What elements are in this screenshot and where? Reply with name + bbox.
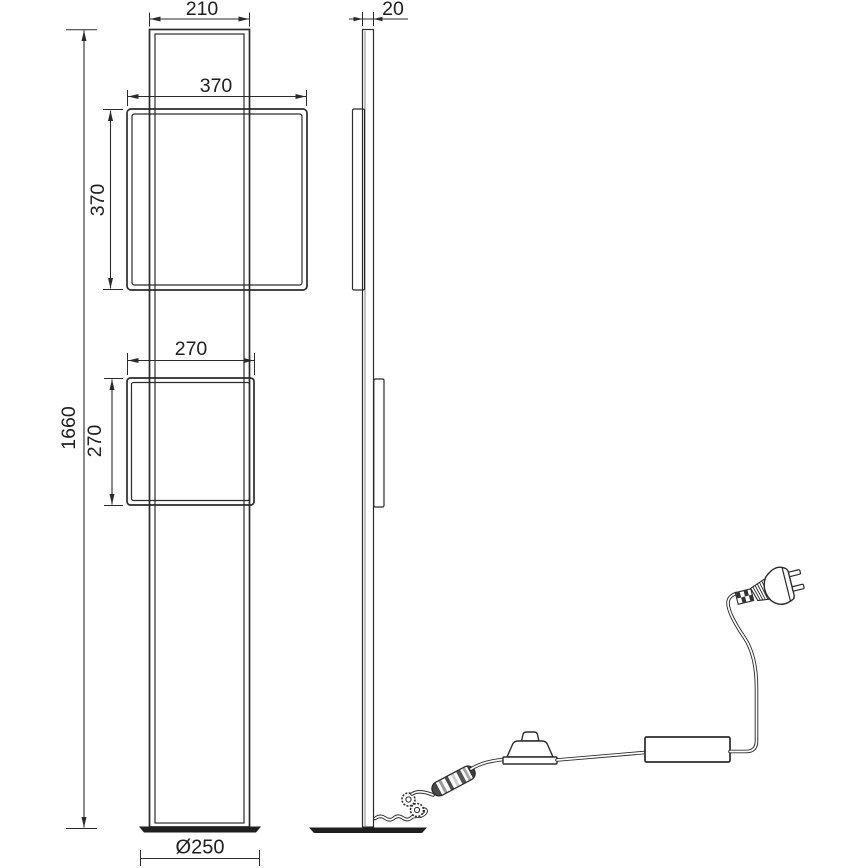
dim-label-270-height: 270 <box>84 425 106 458</box>
dim-label-370-width: 370 <box>200 75 233 97</box>
small-light-frame-front <box>127 378 254 505</box>
large-light-frame-front <box>127 109 307 290</box>
plug-prong-bottom <box>792 584 804 591</box>
side-view: 20 <box>309 0 427 833</box>
dim-label-270-width: 270 <box>175 338 208 360</box>
dimension-20: 20 <box>349 0 408 26</box>
power-plug <box>732 562 807 614</box>
dim-label-370-height: 370 <box>87 184 109 217</box>
dim-label-20: 20 <box>382 0 404 20</box>
cord-to-switch <box>471 760 503 770</box>
base-plate-side <box>309 828 427 834</box>
power-cord-assembly <box>375 562 807 819</box>
dimension-210: 210 <box>150 0 250 27</box>
foot-switch-base <box>503 757 557 764</box>
cord-coil <box>402 792 433 817</box>
technical-drawing-page: 210 370 370 270 270 <box>0 0 868 868</box>
plug-label-block <box>735 589 753 605</box>
cord-to-driver <box>557 753 645 761</box>
dimension-270-height: 270 <box>84 379 123 506</box>
cord-to-plug <box>728 594 757 752</box>
pole-front <box>150 30 250 828</box>
cord-from-pole <box>375 816 421 820</box>
dim-label-1660: 1660 <box>58 406 80 450</box>
small-frame-side-profile <box>374 379 384 507</box>
lamp-dimension-drawing: 210 370 370 270 270 <box>0 0 868 868</box>
led-driver-box <box>645 737 730 762</box>
plug-prong-top <box>788 569 800 576</box>
foot-switch-button <box>522 732 540 741</box>
dimension-base-diameter: Ø250 <box>141 836 260 866</box>
base-plate-front <box>139 827 261 833</box>
front-view: 210 370 370 270 270 <box>58 0 307 866</box>
dim-label-210: 210 <box>186 0 219 20</box>
foot-switch-dome <box>507 741 553 757</box>
dimension-370-height: 370 <box>87 110 123 290</box>
foot-switch <box>503 732 557 764</box>
dim-label-base-diameter: Ø250 <box>176 836 225 858</box>
dimension-270-width: 270 <box>128 338 255 375</box>
arrow-right <box>374 17 383 22</box>
arrow-left <box>354 17 363 22</box>
dimension-370-width: 370 <box>128 75 307 106</box>
